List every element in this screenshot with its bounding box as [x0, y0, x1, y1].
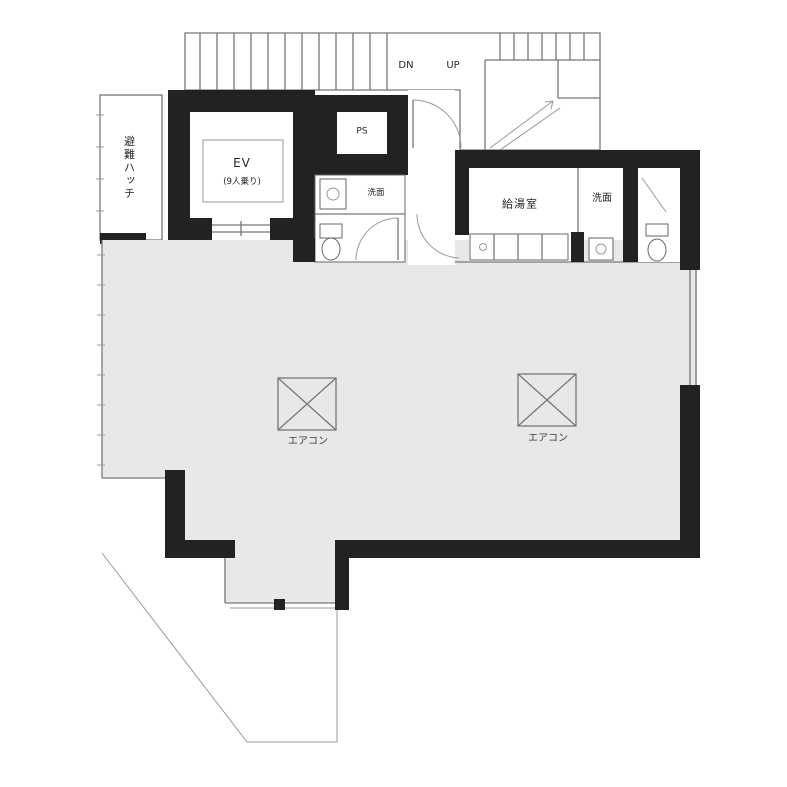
- floor-plan-canvas: [0, 0, 787, 787]
- label-aircon-right: エアコン: [528, 434, 568, 444]
- floor-plan: 避難ハッチ EV (9人乗り) PS 洗面 給湯室 洗面 DN UP エアコン …: [0, 0, 787, 787]
- label-kitchenette: 給湯室: [502, 199, 538, 210]
- toilet-tank: [320, 224, 342, 238]
- label-elevator-capacity: (9人乗り): [223, 178, 261, 187]
- entry-corridor: [408, 90, 461, 265]
- sink-counter: [470, 234, 568, 260]
- washbasin: [320, 179, 346, 209]
- label-pipe-space: PS: [356, 128, 367, 137]
- label-stair-up: UP: [446, 61, 459, 71]
- label-powder-room: 洗面: [592, 194, 612, 204]
- label-escape-balcony: 避難ハッチ: [124, 136, 135, 201]
- label-aircon-left: エアコン: [288, 437, 328, 447]
- toilet-tank: [646, 224, 668, 236]
- powder-basin: [589, 238, 613, 260]
- toilet-bowl: [322, 238, 340, 260]
- label-washroom: 洗面: [367, 189, 384, 198]
- toilet-bowl: [648, 239, 666, 261]
- label-stair-down: DN: [398, 61, 413, 71]
- label-elevator: EV: [233, 157, 251, 169]
